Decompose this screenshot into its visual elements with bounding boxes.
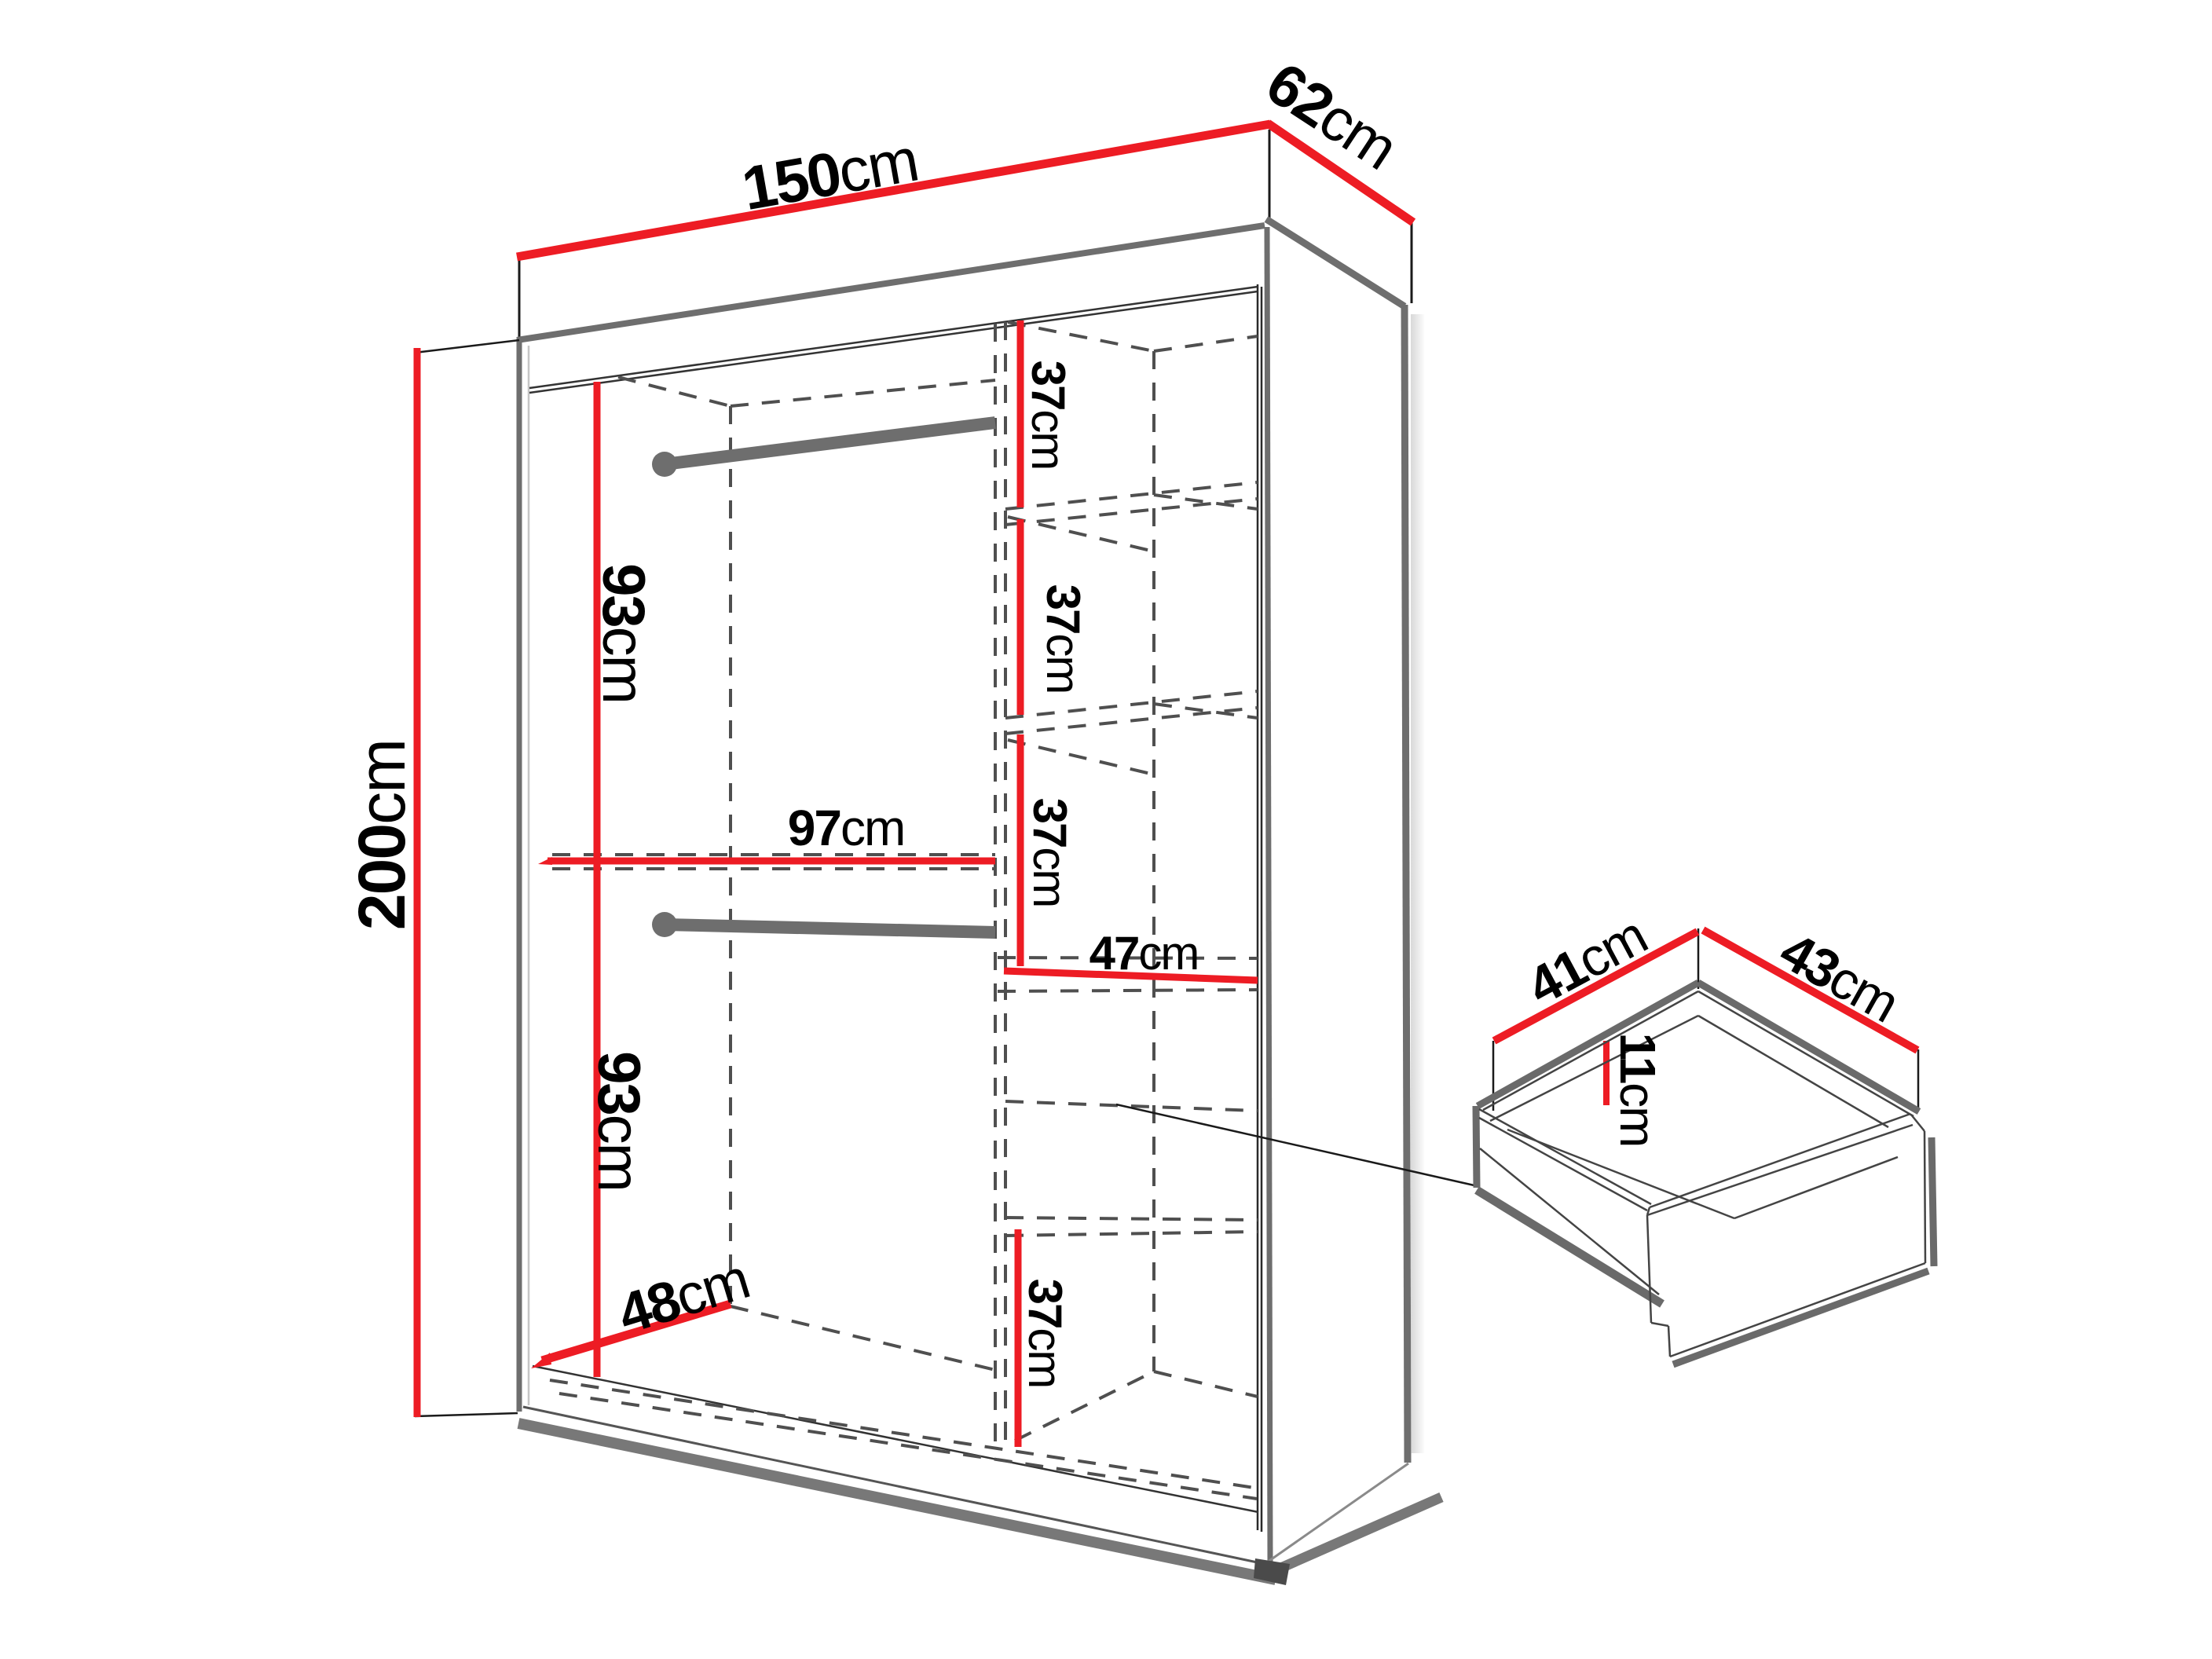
svg-text:93cm: 93cm	[590, 563, 657, 703]
svg-text:47cm: 47cm	[1090, 927, 1199, 980]
svg-text:11cm: 11cm	[1610, 1033, 1666, 1147]
svg-text:37cm: 37cm	[1024, 798, 1076, 907]
svg-text:37cm: 37cm	[1019, 1279, 1071, 1388]
svg-text:93cm: 93cm	[585, 1051, 652, 1191]
svg-text:200cm: 200cm	[345, 740, 419, 930]
svg-text:97cm: 97cm	[788, 800, 905, 856]
svg-text:37cm: 37cm	[1022, 361, 1075, 470]
svg-text:37cm: 37cm	[1037, 584, 1090, 694]
